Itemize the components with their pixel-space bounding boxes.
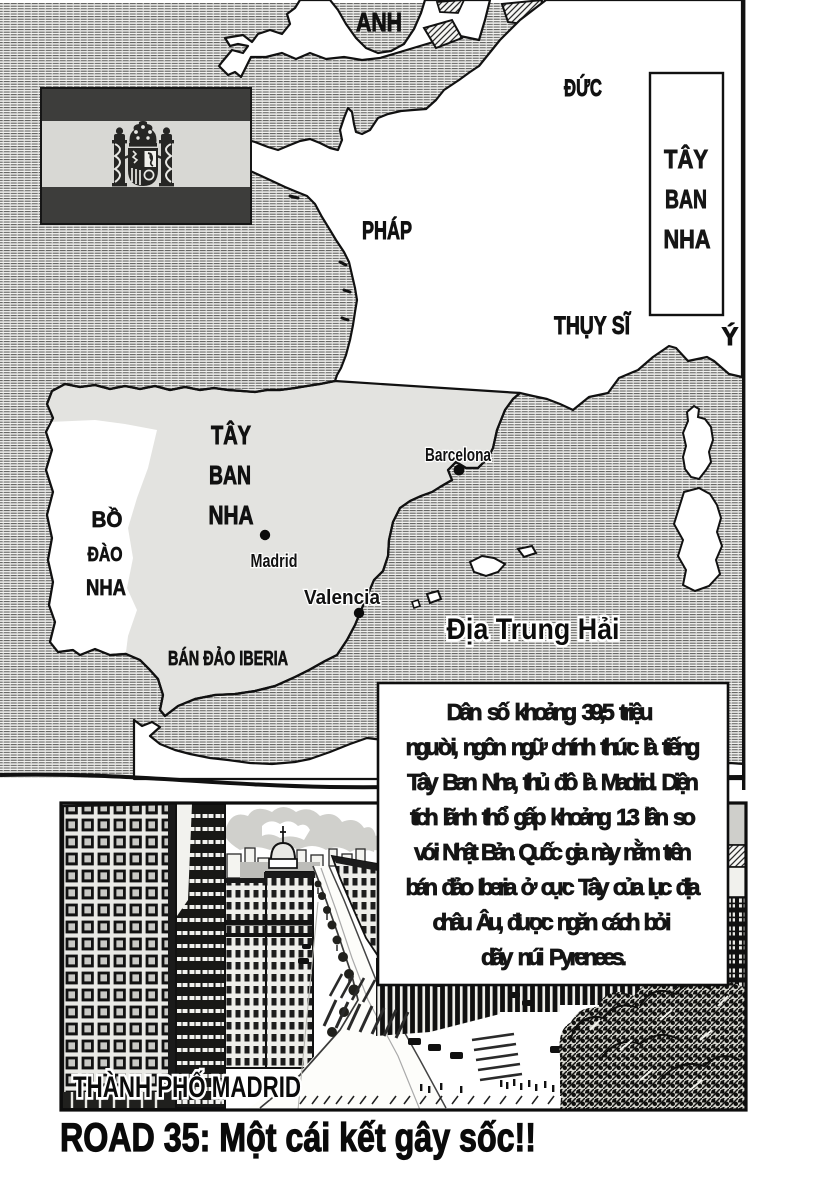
svg-text:NHA: NHA: [86, 575, 126, 600]
svg-text:Barcelona: Barcelona: [425, 445, 492, 465]
svg-text:bán đảo Iberia ở cực Tây của l: bán đảo Iberia ở cực Tây của lục địa: [406, 874, 702, 900]
svg-text:Địa Trung Hải: Địa Trung Hải: [447, 613, 620, 646]
svg-text:dãy núi Pyrenees.: dãy núi Pyrenees.: [481, 944, 627, 970]
svg-text:BỒ: BỒ: [92, 507, 123, 532]
svg-text:tích lãnh thổ gấp khoảng 1.3 l: tích lãnh thổ gấp khoảng 1.3 lần so: [410, 804, 696, 830]
svg-text:Madrid: Madrid: [251, 551, 298, 571]
svg-text:ĐỨC: ĐỨC: [564, 74, 602, 102]
svg-text:THÀNH PHỐ MADRID: THÀNH PHỐ MADRID: [73, 1070, 301, 1104]
svg-text:ĐÀO: ĐÀO: [88, 543, 123, 566]
svg-text:TÂY: TÂY: [211, 420, 251, 450]
svg-text:NHA: NHA: [209, 500, 254, 530]
svg-text:NHA: NHA: [664, 224, 711, 254]
svg-text:Valencia: Valencia: [304, 587, 381, 609]
svg-text:PHÁP: PHÁP: [362, 216, 412, 245]
svg-text:với Nhật Bản. Quốc gia này nằm: với Nhật Bản. Quốc gia này nằm trên: [414, 838, 692, 865]
svg-text:ROAD 35: Một cái kết gây sốc!!: ROAD 35: Một cái kết gây sốc!!: [60, 1116, 536, 1160]
svg-text:Dân số khoảng 39,5 triệu: Dân số khoảng 39,5 triệu: [447, 699, 654, 725]
svg-text:BAN: BAN: [209, 460, 251, 490]
svg-text:người, ngôn ngữ chính thức là: người, ngôn ngữ chính thức là tiếng: [406, 734, 701, 760]
svg-text:TÂY: TÂY: [664, 144, 708, 174]
svg-text:châu Âu, được ngăn cách bởi: châu Âu, được ngăn cách bởi: [433, 908, 672, 935]
svg-text:BÁN ĐẢO IBERIA: BÁN ĐẢO IBERIA: [168, 647, 288, 670]
svg-text:ANH: ANH: [356, 7, 402, 37]
svg-text:Ý: Ý: [722, 321, 739, 351]
svg-text:BAN: BAN: [665, 184, 707, 214]
svg-text:Tây Ban Nha, thủ đô là Madrid.: Tây Ban Nha, thủ đô là Madrid. Diện: [407, 769, 699, 795]
svg-text:THỤY SĨ: THỤY SĨ: [554, 310, 632, 340]
